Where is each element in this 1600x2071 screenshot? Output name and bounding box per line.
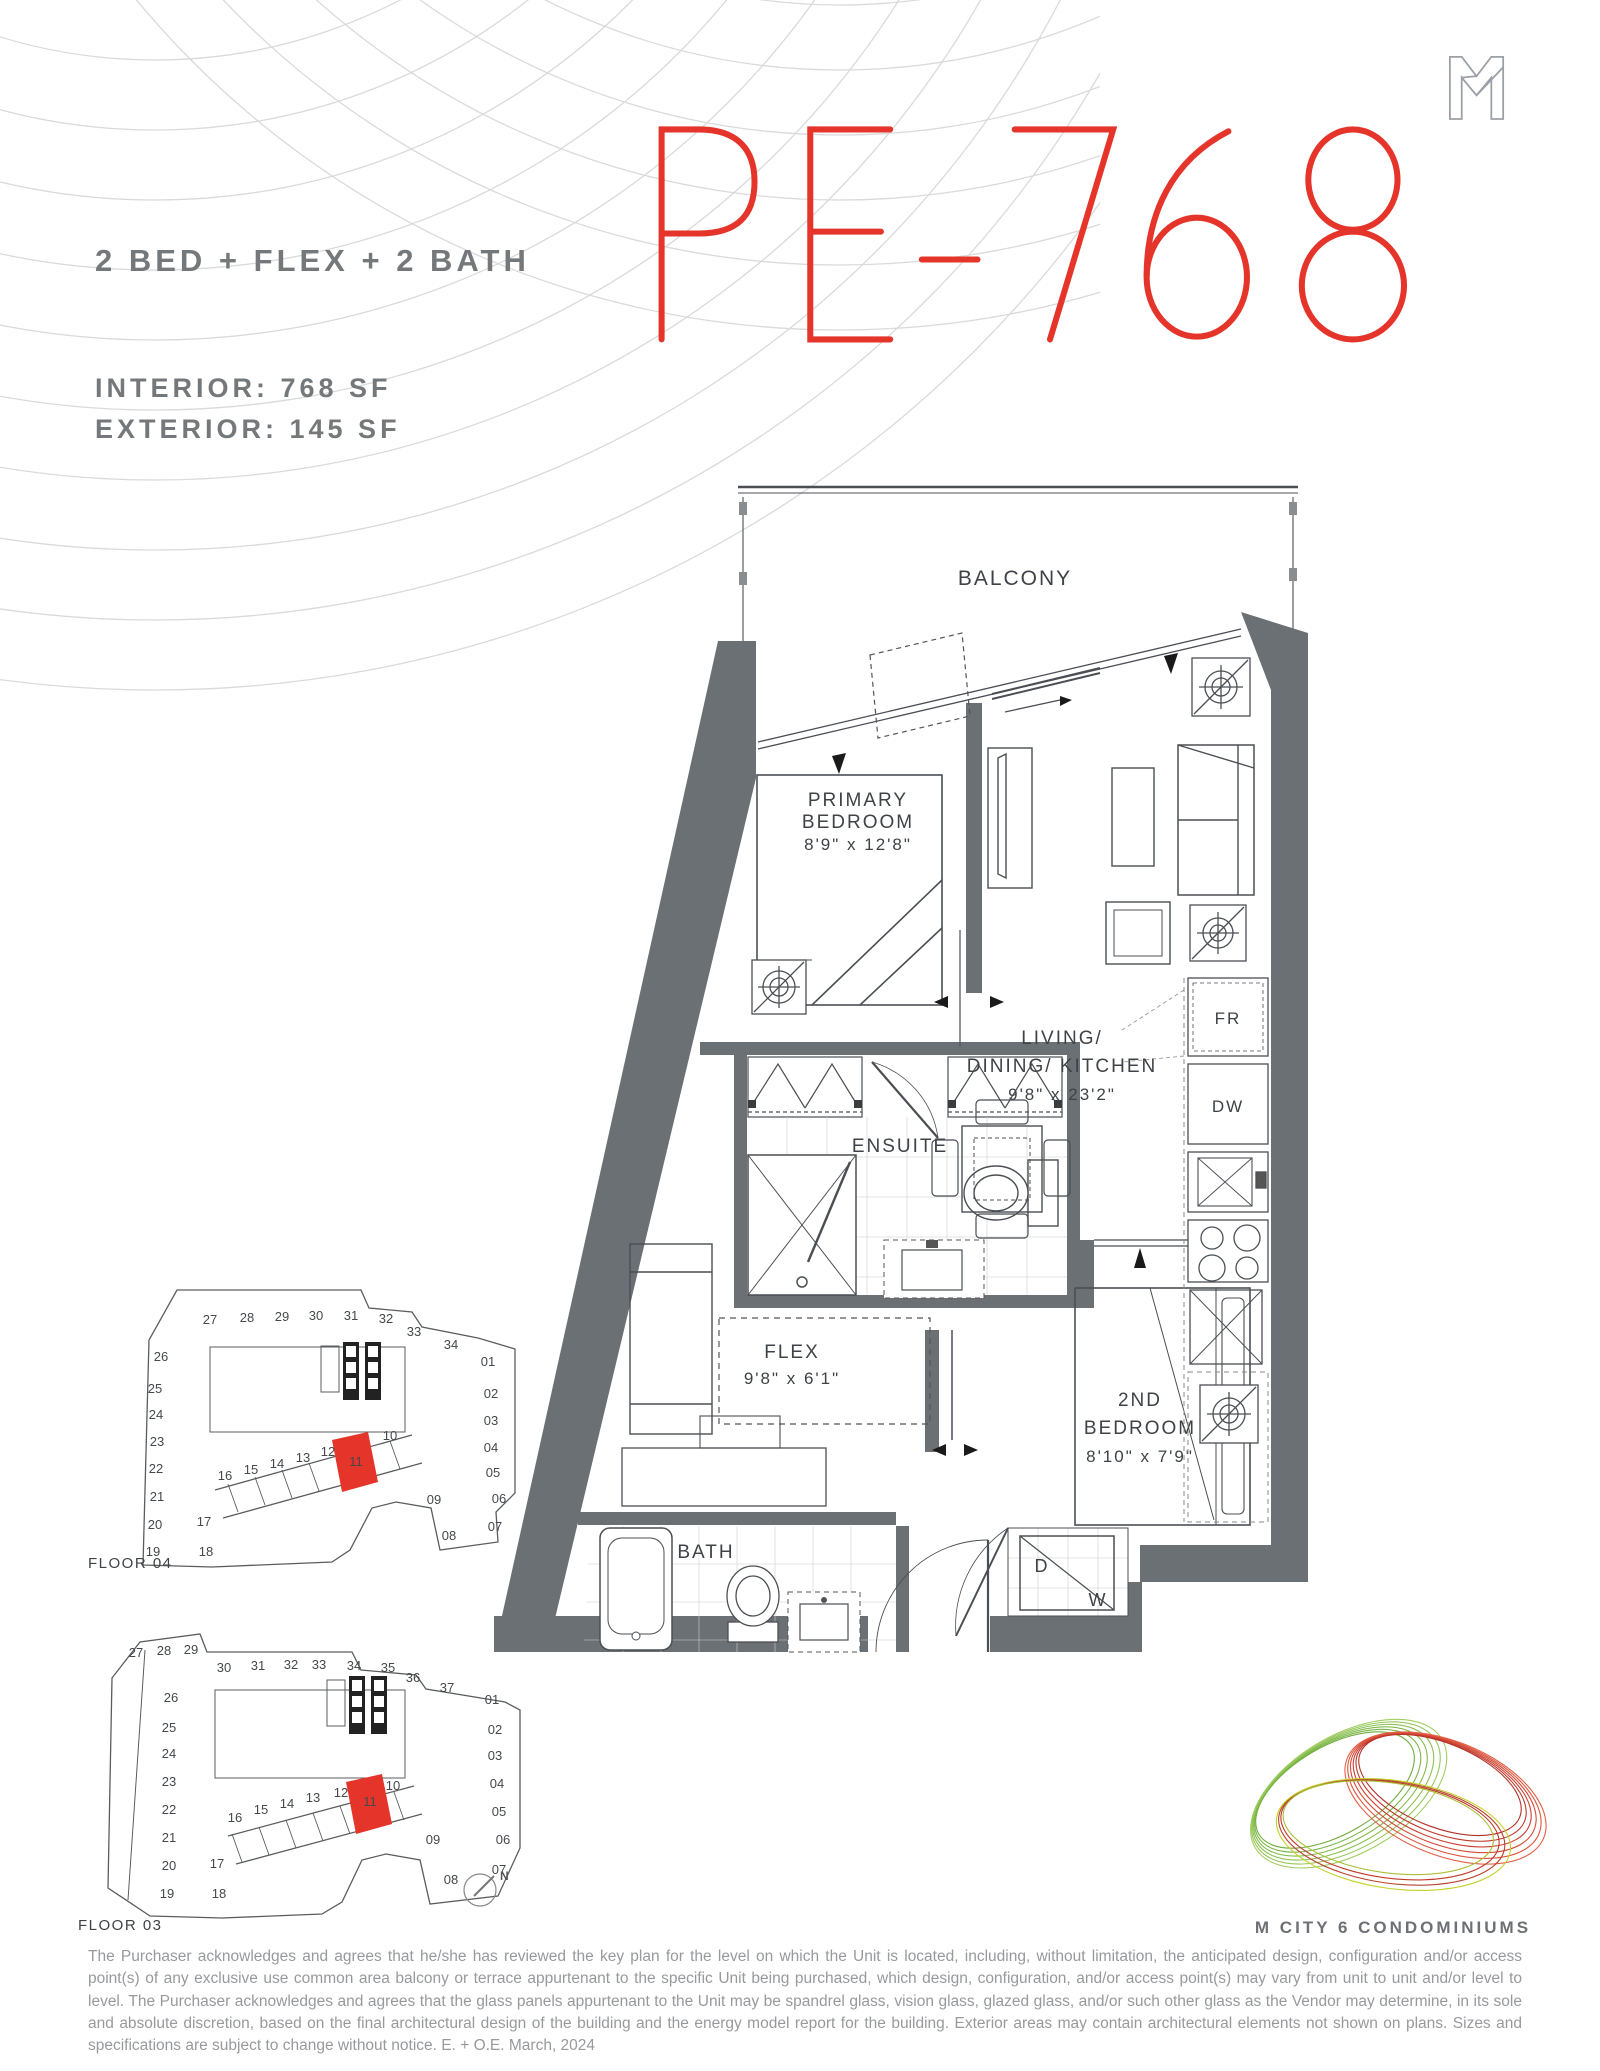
keyplan-unit-number: 06 xyxy=(496,1832,510,1847)
dishwasher-label: DW xyxy=(1212,1097,1244,1116)
keyplan-unit-number: 05 xyxy=(492,1804,506,1819)
keyplan-unit-number: 21 xyxy=(162,1830,176,1845)
keyplan-unit-number: 02 xyxy=(484,1386,498,1401)
keyplan-unit-number: 27 xyxy=(203,1312,217,1327)
hvac2-icon xyxy=(1200,1385,1258,1443)
keyplan-unit-number: 10 xyxy=(383,1428,397,1443)
floor03-units: 2728293031323334353637010203040506070809… xyxy=(129,1642,510,1901)
armchair-icon xyxy=(1106,902,1170,964)
keyplan-unit-number: 31 xyxy=(251,1658,265,1673)
tv-console-icon xyxy=(988,748,1032,888)
bath-sink-icon xyxy=(788,1592,860,1652)
keyplan-unit-number: 22 xyxy=(149,1461,163,1476)
keyplan-unit-number: 36 xyxy=(406,1670,420,1685)
keyplan-unit-number: 11 xyxy=(349,1454,363,1469)
living-dims: 9'8" x 23'2" xyxy=(1008,1085,1116,1104)
keyplan-unit-number: 07 xyxy=(488,1519,502,1534)
vanity-sink-icon xyxy=(884,1240,984,1298)
keyplan-unit-number: 14 xyxy=(280,1796,294,1811)
keyplan-unit-number: 08 xyxy=(442,1528,456,1543)
keyplan-unit-number: 20 xyxy=(162,1858,176,1873)
keyplan-unit-number: 13 xyxy=(306,1790,320,1805)
keyplan-unit-number: 03 xyxy=(484,1413,498,1428)
keyplan-unit-number: 18 xyxy=(212,1886,226,1901)
keyplan-unit-number: 06 xyxy=(492,1491,506,1506)
keyplan-unit-number: 20 xyxy=(148,1517,162,1532)
keyplan-unit-number: 26 xyxy=(164,1690,178,1705)
keyplan-unit-number: 13 xyxy=(296,1450,310,1465)
keyplan-unit-number: 16 xyxy=(228,1810,242,1825)
exterior-area-label: EXTERIOR: 145 SF xyxy=(95,409,401,450)
keyplan-unit-number: 09 xyxy=(426,1832,440,1847)
keyplan-unit-number: 28 xyxy=(157,1643,171,1658)
keyplan-unit-number: 27 xyxy=(129,1645,143,1660)
keyplan-unit-number: 22 xyxy=(162,1802,176,1817)
keyplan-unit-number: 24 xyxy=(149,1407,163,1422)
floorplan: BALCONY xyxy=(490,470,1320,1705)
keyplan-unit-number: 17 xyxy=(197,1514,211,1529)
keyplan-unit-number: 19 xyxy=(160,1886,174,1901)
hvac4-icon xyxy=(1190,905,1246,961)
keyplan-unit-number: 05 xyxy=(486,1465,500,1480)
dryer-label: D xyxy=(1035,1556,1050,1576)
fridge-label: FR xyxy=(1215,1009,1242,1028)
desk-icon xyxy=(622,1416,826,1506)
keyplan-unit-number: 04 xyxy=(490,1776,504,1791)
keyplan-unit-number: 31 xyxy=(344,1308,358,1323)
keyplan-unit-number: 01 xyxy=(481,1354,495,1369)
balcony-label: BALCONY xyxy=(958,567,1072,590)
bath-label: BATH xyxy=(677,1542,734,1563)
floor03-label: FLOOR 03 xyxy=(78,1917,163,1934)
elevator-core-icon xyxy=(343,1342,381,1400)
unit-title xyxy=(650,122,1450,345)
keyplan-unit-number: 11 xyxy=(363,1794,377,1809)
keyplan-unit-number: 29 xyxy=(184,1642,198,1657)
keyplan-unit-number: 14 xyxy=(270,1456,284,1471)
keyplan-unit-number: 28 xyxy=(240,1310,254,1325)
keyplan-unit-number: 24 xyxy=(162,1746,176,1761)
floor04-label: FLOOR 04 xyxy=(88,1555,173,1572)
disclaimer-text: The Purchaser acknowledges and agrees th… xyxy=(88,1946,1522,2058)
brand-name: M CITY 6 CONDOMINIUMS xyxy=(1228,1918,1558,1938)
keyplan-unit-number: 10 xyxy=(386,1778,400,1793)
m-logo-icon xyxy=(1442,48,1514,122)
keyplan-unit-number: 01 xyxy=(485,1692,499,1707)
keyplan-unit-number: 37 xyxy=(440,1680,454,1695)
area-figures: INTERIOR: 768 SF EXTERIOR: 145 SF xyxy=(95,368,401,450)
keyplan-unit-number: 17 xyxy=(210,1856,224,1871)
ensuite-label: ENSUITE xyxy=(852,1136,948,1157)
primary-bedroom-dims: 8'9" x 12'8" xyxy=(804,835,912,854)
elevator-core2-icon xyxy=(349,1676,387,1734)
keyplan-unit-number: 33 xyxy=(407,1324,421,1339)
unit-config-label: 2 BED + FLEX + 2 BATH xyxy=(95,243,530,279)
keyplan-floor03: 2728293031323334353637010203040506070809… xyxy=(50,1590,530,1950)
second-bedroom-label-1: 2ND xyxy=(1118,1390,1162,1411)
keyplan-unit-number: 02 xyxy=(488,1722,502,1737)
keyplan-unit-number: 34 xyxy=(444,1337,458,1352)
keyplan-unit-number: 15 xyxy=(254,1802,268,1817)
keyplan-unit-number: 16 xyxy=(218,1468,232,1483)
keyplan-unit-number: 30 xyxy=(217,1660,231,1675)
keyplan-unit-number: 08 xyxy=(444,1872,458,1887)
flex-label: FLEX xyxy=(764,1342,820,1363)
compass-n-label: N xyxy=(500,1869,509,1883)
shower-icon xyxy=(748,1155,856,1295)
hvac3-icon xyxy=(1192,658,1250,716)
keyplan-unit-number: 32 xyxy=(379,1311,393,1326)
keyplan-unit-number: 23 xyxy=(150,1434,164,1449)
keyplan-unit-number: 34 xyxy=(347,1658,361,1673)
coffee-table-icon xyxy=(1112,768,1154,866)
flex-dims: 9'8" x 6'1" xyxy=(744,1369,840,1388)
second-bedroom-label-2: BEDROOM xyxy=(1084,1418,1196,1439)
keyplan-unit-number: 12 xyxy=(321,1444,335,1459)
bathtub-icon xyxy=(600,1528,672,1650)
keyplan-unit-number: 23 xyxy=(162,1774,176,1789)
keyplan-unit-number: 25 xyxy=(148,1381,162,1396)
keyplan-floor04: 2728293031323334010203040506070809101112… xyxy=(60,1250,520,1580)
hvac-icon xyxy=(752,960,806,1014)
keyplan-unit-number: 33 xyxy=(312,1657,326,1672)
primary-bedroom-label-1: PRIMARY xyxy=(808,790,908,811)
mcity-ribbon-logo xyxy=(1230,1690,1550,1910)
keyplan-unit-number: 30 xyxy=(309,1308,323,1323)
keyplan-unit-number: 35 xyxy=(381,1660,395,1675)
keyplan-unit-number: 32 xyxy=(284,1657,298,1672)
keyplan-unit-number: 29 xyxy=(275,1309,289,1324)
second-bedroom-dims: 8'10" x 7'9" xyxy=(1086,1447,1194,1466)
keyplan-unit-number: 12 xyxy=(334,1785,348,1800)
keyplan-unit-number: 21 xyxy=(150,1489,164,1504)
keyplan-unit-number: 25 xyxy=(162,1720,176,1735)
daybed-icon xyxy=(630,1244,712,1434)
toilet2-icon xyxy=(727,1566,779,1642)
keyplan-unit-number: 04 xyxy=(484,1440,498,1455)
keyplan-unit-number: 09 xyxy=(427,1492,441,1507)
keyplan-unit-number: 18 xyxy=(199,1544,213,1559)
washer-label: W xyxy=(1089,1590,1108,1610)
primary-bedroom-label-2: BEDROOM xyxy=(802,812,914,833)
keyplan-unit-number: 26 xyxy=(154,1349,168,1364)
living-label-1: LIVING/ xyxy=(1021,1028,1103,1049)
keyplan-unit-number: 15 xyxy=(244,1462,258,1477)
brochure-page: 2 BED + FLEX + 2 BATH INTERIOR: 768 SF E… xyxy=(0,0,1600,2071)
interior-area-label: INTERIOR: 768 SF xyxy=(95,368,401,409)
living-label-2: DINING/ KITCHEN xyxy=(967,1056,1157,1077)
keyplan-unit-number: 03 xyxy=(488,1748,502,1763)
